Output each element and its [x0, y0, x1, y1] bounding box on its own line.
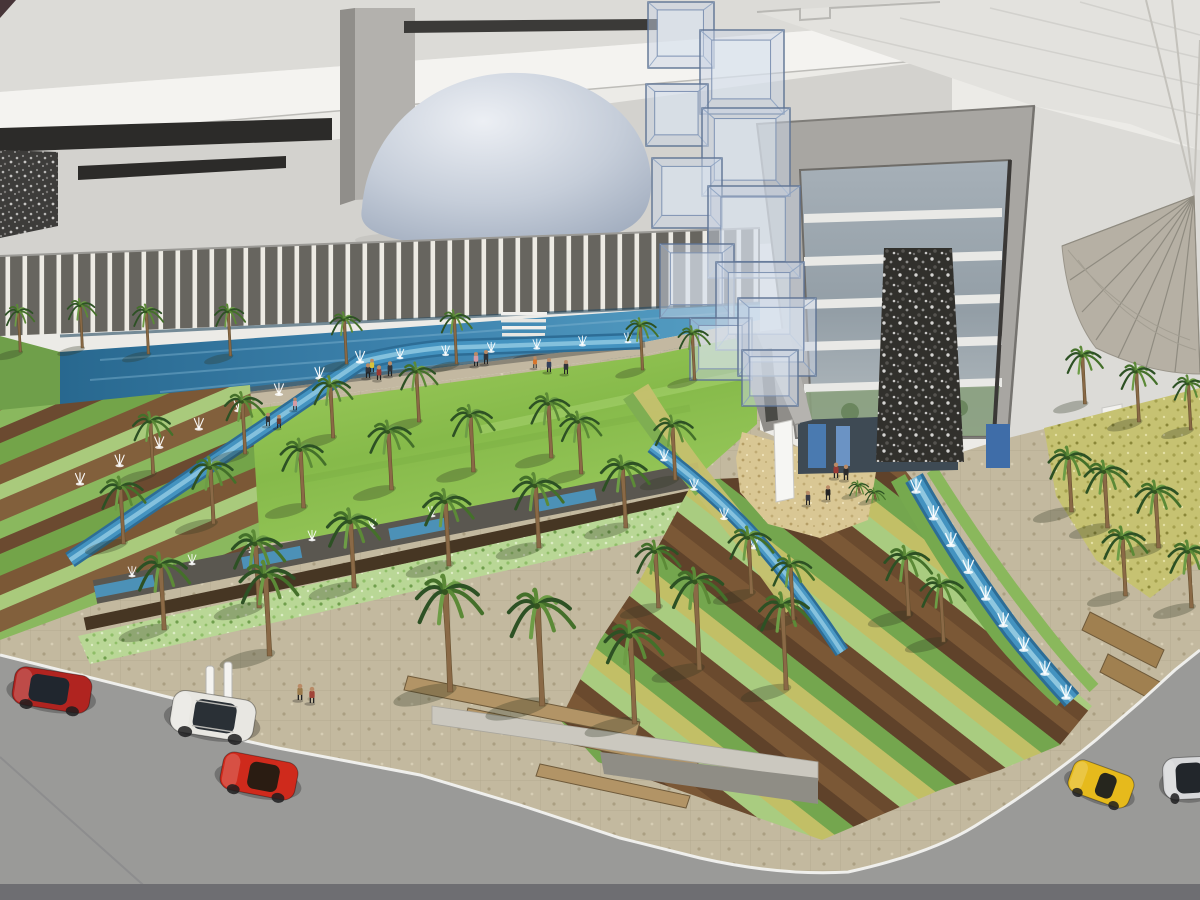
image-bottom-strip: [0, 884, 1200, 900]
rendering-canvas: [0, 0, 1200, 900]
glass-cube: [646, 84, 708, 146]
architectural-rendering: [0, 0, 1200, 900]
entry-pillar: [774, 420, 794, 502]
gabion-stone-column: [876, 248, 964, 462]
gabion-wall: [0, 150, 58, 238]
glass-cube: [700, 30, 784, 114]
entry-sign-panel: [986, 424, 1010, 468]
glass-cube: [742, 350, 798, 406]
